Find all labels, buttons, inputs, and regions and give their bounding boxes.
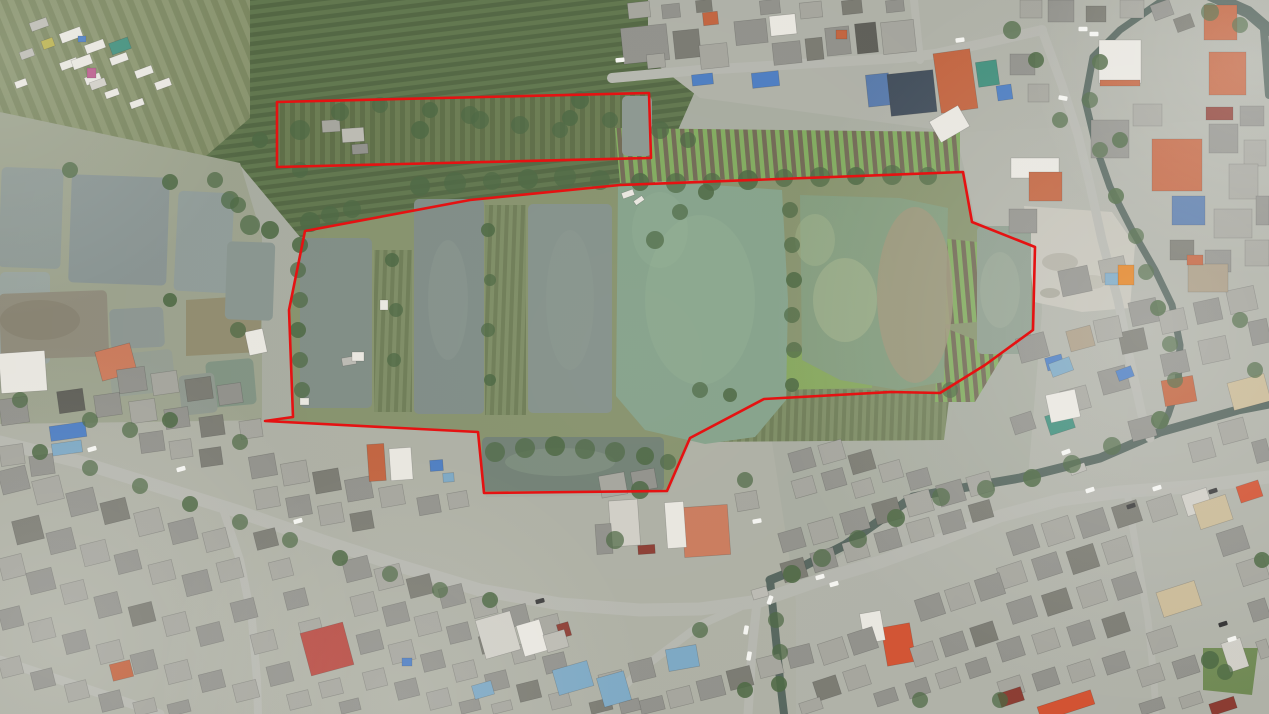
haze-layer <box>0 0 1269 714</box>
haze-patch <box>0 0 1269 714</box>
aerial-photo-canvas <box>0 0 1269 714</box>
aerial-scene <box>0 0 1269 714</box>
